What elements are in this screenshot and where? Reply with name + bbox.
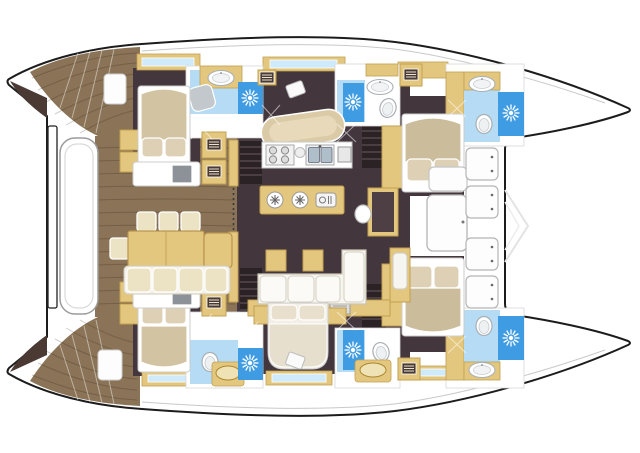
port-aft-berth [138,86,190,170]
salon-sofa [258,250,366,304]
fwd-door-panel [427,195,467,251]
fwd-door-top-panel [429,167,467,191]
foredeck-seat-pad [466,186,498,218]
cockpit-l-bench [204,233,232,268]
stbd-mid-head [335,328,400,388]
double-sink-icon [306,145,334,165]
foredeck-seat-pad [466,238,498,270]
cockpit-chair [110,238,129,259]
galley-island [260,186,344,214]
fridge-drawer-icon [267,192,283,208]
catamaran-floor-plan [0,0,640,453]
deck-locker-stbd [98,350,122,380]
port-aft-head [186,66,263,138]
cockpit-chair [137,212,156,231]
cockpit-chair [181,212,200,231]
stbd-fwd-berth [402,258,464,336]
port-mid-head [335,64,400,126]
nav-stool [355,205,371,223]
bow-chevron [505,190,528,262]
fridge-drawer-icon [292,192,308,208]
dinghy [60,138,98,314]
floor-plan-canvas [0,0,640,453]
deck-locker-port [104,74,126,104]
cockpit-bench [124,266,230,294]
cockpit-chair [159,212,178,231]
stove-icon [266,145,294,165]
ottoman [266,250,286,271]
stbd-aft-head [186,312,263,388]
foredeck-seat-pad [466,276,498,308]
ottoman [303,250,323,271]
stbd-aft-berth [138,302,190,372]
davit-bar [48,126,57,308]
foredeck-seat-pad [466,148,498,180]
